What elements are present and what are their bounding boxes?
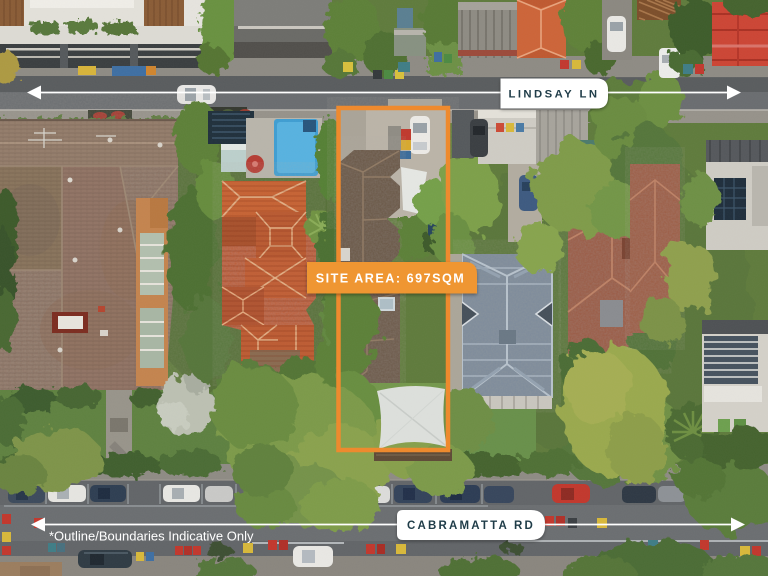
svg-text:LINDSAY LN: LINDSAY LN [508,89,599,101]
svg-text:*Outline/Boundaries Indicative: *Outline/Boundaries Indicative Only [49,529,254,544]
svg-text:CABRAMATTA RD: CABRAMATTA RD [407,520,535,532]
svg-text:SITE AREA: 697SQM: SITE AREA: 697SQM [316,272,466,286]
